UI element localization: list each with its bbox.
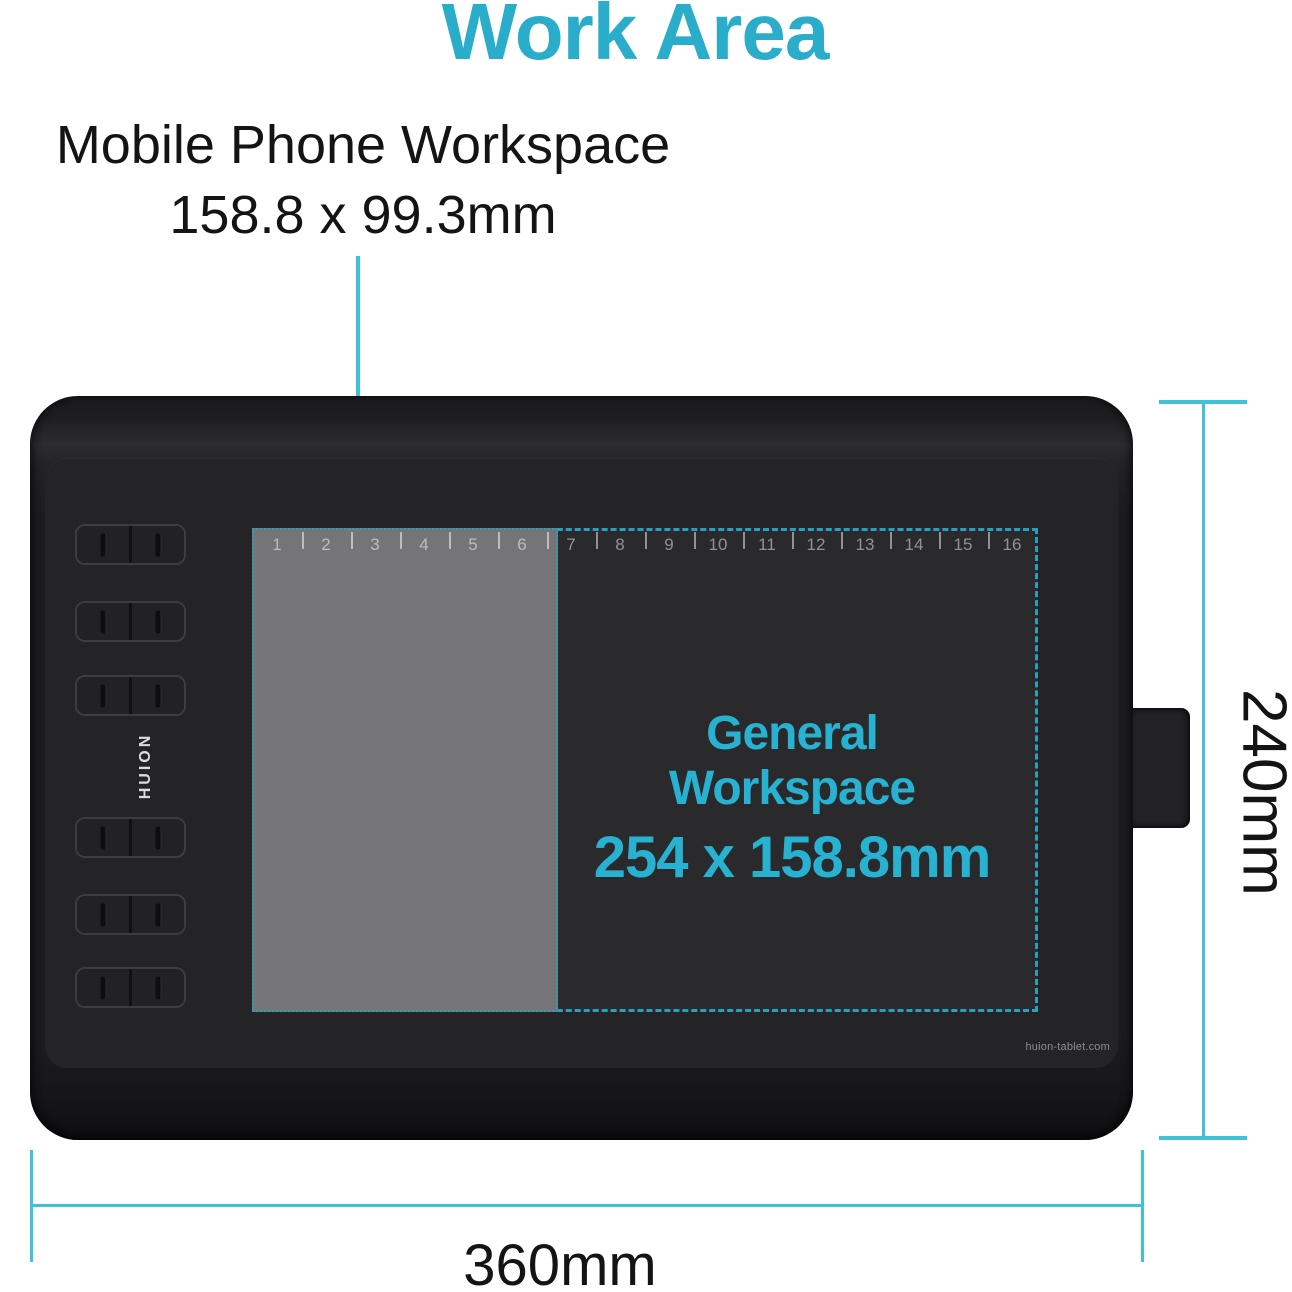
ruler-number: 10 xyxy=(709,535,728,555)
ruler-tick xyxy=(449,532,451,549)
work-surface: 12345678910111213141516 General Workspac… xyxy=(252,528,1038,1012)
express-key-button xyxy=(132,969,184,1006)
express-key-button xyxy=(132,677,184,714)
express-key-button xyxy=(77,603,129,640)
express-key-button xyxy=(77,969,129,1006)
express-key-slit xyxy=(101,976,106,999)
express-key-pair xyxy=(75,967,186,1008)
height-dimension-cap-top xyxy=(1159,400,1247,404)
express-key-button xyxy=(132,896,184,933)
width-dimension-cap-left xyxy=(30,1150,33,1262)
general-workspace-label: General Workspace 254 x 158.8mm xyxy=(582,706,1002,891)
ruler-tick xyxy=(596,532,598,549)
express-key-slit xyxy=(156,976,161,999)
ruler-tick xyxy=(841,532,843,549)
ruler-number: 4 xyxy=(419,535,428,555)
height-dimension-line xyxy=(1202,402,1205,1139)
ruler-tick xyxy=(694,532,696,549)
height-dimension-label: 240mm xyxy=(1232,572,1292,1012)
ruler-number: 8 xyxy=(615,535,624,555)
mobile-workspace-callout-name: Mobile Phone Workspace xyxy=(0,110,726,180)
ruler-tick xyxy=(792,532,794,549)
express-key-pair xyxy=(75,675,186,716)
mobile-workspace-callout: Mobile Phone Workspace 158.8 x 99.3mm xyxy=(0,110,726,250)
ruler-number: 14 xyxy=(905,535,924,555)
width-dimension-cap-right xyxy=(1141,1150,1144,1262)
express-key-slit xyxy=(156,903,161,926)
express-key-slit xyxy=(101,903,106,926)
workspace-ruler: 12345678910111213141516 xyxy=(252,528,1038,558)
ruler-number: 12 xyxy=(807,535,826,555)
general-workspace-size: 254 x 158.8mm xyxy=(582,824,1002,891)
express-key-pair xyxy=(75,817,186,858)
express-key-button xyxy=(77,677,129,714)
ruler-tick xyxy=(302,532,304,549)
ruler-number: 16 xyxy=(1003,535,1022,555)
express-key-button xyxy=(77,819,129,856)
ruler-number: 13 xyxy=(856,535,875,555)
express-key-button xyxy=(132,526,184,563)
express-key-slit xyxy=(101,533,106,556)
ruler-number: 15 xyxy=(954,535,973,555)
ruler-number: 5 xyxy=(468,535,477,555)
ruler-number: 1 xyxy=(272,535,281,555)
width-dimension-line xyxy=(31,1204,1143,1207)
width-dimension-label: 360mm xyxy=(330,1232,790,1292)
graphics-tablet: HUION 12345678910111213141516 General Wo… xyxy=(30,396,1133,1140)
express-key-slit xyxy=(101,684,106,707)
ruler-number: 6 xyxy=(517,535,526,555)
brand-logo: HUION xyxy=(116,716,176,816)
work-area-diagram: Work Area Mobile Phone Workspace 158.8 x… xyxy=(0,0,1292,1292)
express-key-button xyxy=(77,896,129,933)
ruler-tick xyxy=(498,532,500,549)
ruler-number: 9 xyxy=(664,535,673,555)
ruler-number: 2 xyxy=(321,535,330,555)
express-key-pair xyxy=(75,601,186,642)
ruler-number: 7 xyxy=(566,535,575,555)
ruler-tick xyxy=(890,532,892,549)
express-key-slit xyxy=(156,826,161,849)
general-workspace-name: General Workspace xyxy=(582,706,1002,816)
height-dimension-cap-bottom xyxy=(1159,1136,1247,1140)
mobile-workspace-callout-size: 158.8 x 99.3mm xyxy=(0,180,726,250)
express-key-slit xyxy=(156,610,161,633)
express-key-pair xyxy=(75,524,186,565)
page-title: Work Area xyxy=(0,0,1270,78)
website-text: huion-tablet.com xyxy=(990,1041,1110,1053)
ruler-number: 3 xyxy=(370,535,379,555)
mobile-phone-workspace-area xyxy=(252,528,558,1012)
ruler-tick xyxy=(547,532,549,549)
express-key-button xyxy=(132,819,184,856)
ruler-tick xyxy=(645,532,647,549)
ruler-tick xyxy=(743,532,745,549)
express-key-button xyxy=(77,526,129,563)
express-key-slit xyxy=(156,684,161,707)
ruler-tick xyxy=(939,532,941,549)
ruler-number: 11 xyxy=(758,535,776,555)
ruler-tick xyxy=(351,532,353,549)
express-key-slit xyxy=(156,533,161,556)
express-key-slit xyxy=(101,826,106,849)
usb-cable-tab xyxy=(1131,708,1190,828)
express-key-slit xyxy=(101,610,106,633)
express-key-pair xyxy=(75,894,186,935)
ruler-tick xyxy=(400,532,402,549)
express-key-button xyxy=(132,603,184,640)
ruler-tick xyxy=(988,532,990,549)
